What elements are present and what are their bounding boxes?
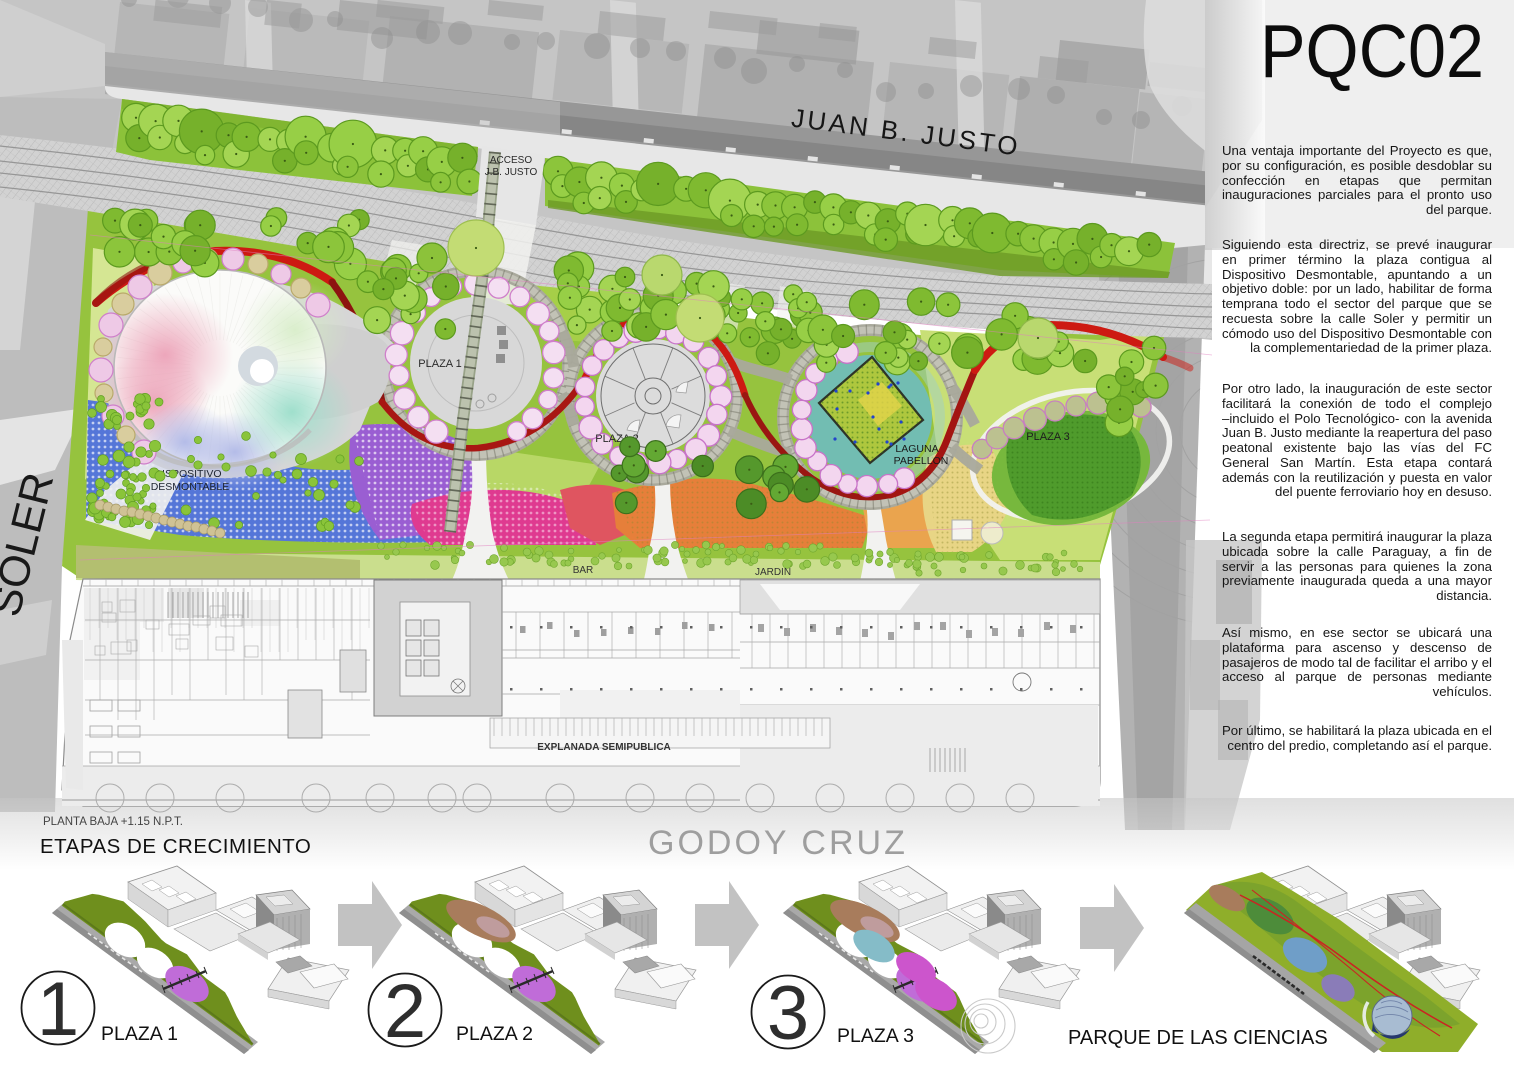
svg-text:PLAZA 3: PLAZA 3 [837, 1025, 914, 1047]
svg-text:DESMONTABLE: DESMONTABLE [151, 481, 230, 493]
svg-text:PLAZA 3: PLAZA 3 [1026, 431, 1069, 443]
svg-text:PLAZA 1: PLAZA 1 [418, 358, 461, 370]
svg-text:EXPLANADA SEMIPUBLICA: EXPLANADA SEMIPUBLICA [537, 742, 671, 753]
svg-text:JARDIN: JARDIN [755, 567, 791, 578]
svg-text:BAR: BAR [573, 565, 594, 576]
svg-text:3: 3 [767, 971, 809, 1056]
svg-text:PARQUE DE LAS CIENCIAS: PARQUE DE LAS CIENCIAS [1068, 1027, 1328, 1049]
svg-text:GODOY CRUZ: GODOY CRUZ [648, 824, 908, 862]
svg-text:ACCESO: ACCESO [490, 155, 532, 166]
svg-text:PQC02: PQC02 [1260, 9, 1484, 93]
svg-text:ETAPAS DE CRECIMIENTO: ETAPAS DE CRECIMIENTO [40, 835, 311, 858]
svg-text:PLAZA 1: PLAZA 1 [101, 1023, 178, 1045]
svg-text:PABELLON: PABELLON [894, 455, 949, 467]
svg-text:LAGUNA: LAGUNA [895, 443, 938, 455]
svg-text:J.B. JUSTO: J.B. JUSTO [485, 167, 538, 178]
svg-text:PLANTA BAJA +1.15 N.P.T.: PLANTA BAJA +1.15 N.P.T. [43, 816, 183, 828]
svg-text:PLAZA 2: PLAZA 2 [456, 1023, 533, 1045]
svg-text:2: 2 [384, 969, 426, 1054]
svg-text:1: 1 [37, 967, 79, 1052]
